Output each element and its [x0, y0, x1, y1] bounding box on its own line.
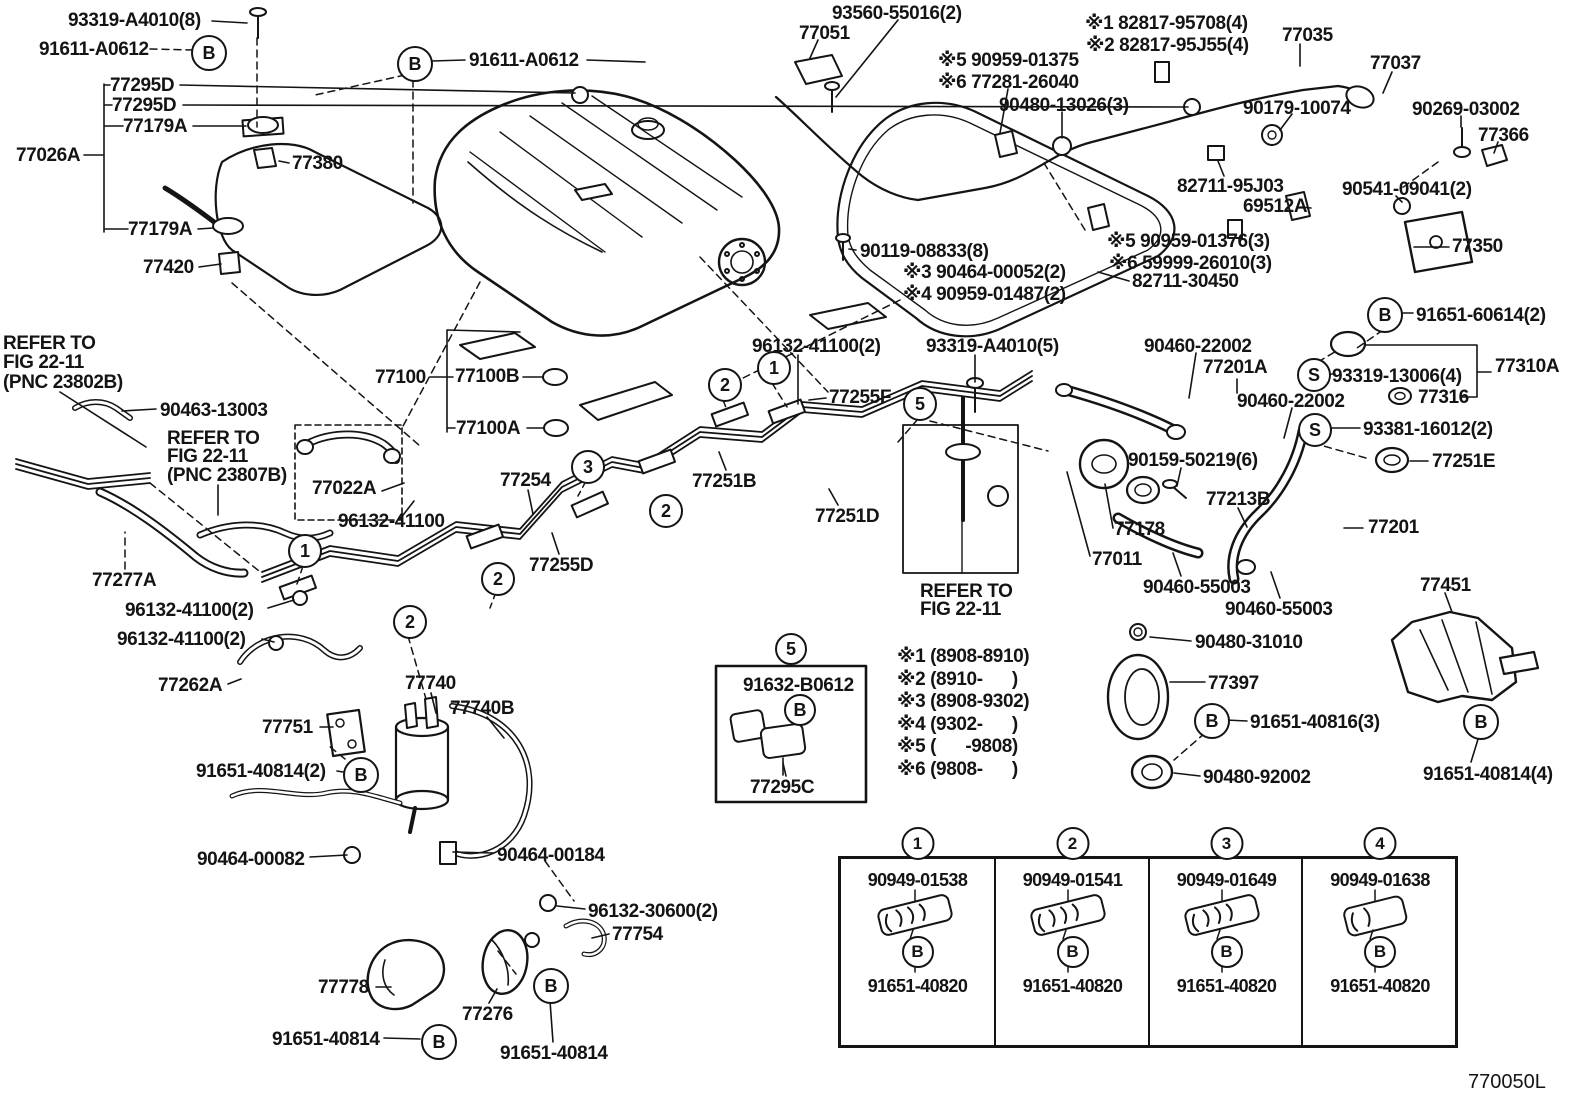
part-93560-55016: 93560-55016(2) [832, 4, 962, 23]
part-77276: 77276 [462, 1005, 513, 1024]
note3-90464-00052: ※3 90464-00052(2) [903, 263, 1066, 282]
drawing-number: 770050L [1468, 1072, 1546, 1092]
callout-2-14: 2 [481, 562, 515, 596]
callout-b-7: B [1194, 703, 1230, 739]
callout-3-table: 3 [1210, 827, 1243, 860]
part-93319-13006: 93319-13006(4) [1332, 367, 1462, 386]
part-77179a-1: 77179A [123, 117, 187, 136]
part-90460-22002-1: 90460-22002 [1144, 337, 1252, 356]
part-96132-30600: 96132-30600(2) [588, 902, 718, 921]
callout-b-4: B [784, 694, 816, 726]
part-93319-a4010-8: 93319-A4010(8) [68, 11, 201, 30]
part-77251b: 77251B [692, 472, 756, 491]
part-91651-40814-2: 91651-40814(2) [196, 762, 326, 781]
part-77310a: 77310A [1495, 357, 1559, 376]
part-77178: 77178 [1114, 520, 1165, 539]
table-part-number: 90949-01538 [841, 870, 994, 891]
part-77213b: 77213B [1206, 490, 1270, 509]
part-77420: 77420 [143, 258, 194, 277]
part-77255d: 77255D [529, 556, 593, 575]
callout-b-table: B [1211, 936, 1243, 968]
part-77754: 77754 [612, 925, 663, 944]
part-90541-09041: 90541-09041(2) [1342, 180, 1472, 199]
callout-2-15: 2 [649, 494, 683, 528]
part-77179a-2: 77179A [128, 220, 192, 239]
part-82711-30450: 82711-30450 [1132, 272, 1239, 291]
part-90464-00184: 90464-00184 [497, 846, 605, 865]
part-90480-31010: 90480-31010 [1195, 633, 1303, 652]
callout-b-8: B [1463, 704, 1499, 740]
part-90159-50219: 90159-50219(6) [1128, 451, 1258, 470]
part-91611-a0612-right: 91611-A0612 [469, 51, 579, 70]
callout-b-table: B [902, 936, 934, 968]
table-part-number: 91651-40820 [1303, 976, 1457, 997]
part-77051: 77051 [799, 24, 850, 43]
callout-2-table: 2 [1056, 827, 1089, 860]
part-91651-40816: 91651-40816(3) [1250, 713, 1380, 732]
callout-4-table: 4 [1364, 827, 1397, 860]
callout-2-13: 2 [393, 605, 427, 639]
part-90179-10074: 90179-10074 [1243, 99, 1351, 118]
part-91651-40814-4: 91651-40814(4) [1423, 765, 1553, 784]
refer1-line2: FIG 22-11 [3, 353, 84, 372]
part-77037: 77037 [1370, 54, 1421, 73]
part-96132-41100-b2: 96132-41100(2) [117, 630, 246, 649]
part-96132-41100-mid: 96132-41100 [338, 512, 445, 531]
part-93319-a4010-5: 93319-A4010(5) [926, 337, 1059, 356]
part-77740: 77740 [405, 674, 456, 693]
callout-b-table: B [1364, 936, 1396, 968]
part-77251e: 77251E [1432, 452, 1495, 471]
part-77100: 77100 [375, 368, 426, 387]
clamp-usage-table: 1 90949-01538 B 91651-40820 2 90949-0154… [838, 856, 1458, 1048]
part-90480-92002: 90480-92002 [1203, 768, 1311, 787]
spec-note-4: ※4 (9302- ) [897, 715, 1018, 734]
callout-b-6: B [421, 1024, 457, 1060]
part-91632-b0612: 91632-B0612 [743, 676, 854, 695]
table-column-3: 3 90949-01649 B 91651-40820 [1148, 859, 1303, 1045]
part-93381-16012: 93381-16012(2) [1363, 420, 1493, 439]
callout-b-table: B [1057, 936, 1089, 968]
refer1-line3: (PNC 23802B) [3, 373, 123, 392]
table-column-2: 2 90949-01541 B 91651-40820 [994, 859, 1149, 1045]
part-77295d-1: 77295D [110, 76, 174, 95]
part-77011: 77011 [1092, 550, 1142, 569]
part-77316: 77316 [1418, 388, 1469, 407]
spec-note-5: ※5 ( -9808) [897, 737, 1018, 756]
note1-82817-95708: ※1 82817-95708(4) [1085, 14, 1248, 33]
part-77251d: 77251D [815, 507, 879, 526]
part-77295c: 77295C [750, 778, 814, 797]
part-77255f: 77255F [829, 388, 891, 407]
callout-1-12: 1 [757, 351, 791, 385]
spec-note-3: ※3 (8908-9302) [897, 692, 1029, 711]
part-77397: 77397 [1208, 674, 1259, 693]
part-77201a: 77201A [1203, 358, 1267, 377]
spec-note-1: ※1 (8908-8910) [897, 647, 1029, 666]
part-77022a: 77022A [312, 479, 376, 498]
part-77254: 77254 [500, 471, 551, 490]
callout-s-9: S [1297, 358, 1331, 392]
part-90464-00082: 90464-00082 [197, 850, 305, 869]
part-77740b: 77740B [450, 699, 514, 718]
note5-90959-01376: ※5 90959-01376(3) [1107, 232, 1270, 251]
refer1-line1: REFER TO [3, 334, 96, 353]
part-77366: 77366 [1478, 126, 1529, 145]
part-77451: 77451 [1420, 576, 1471, 595]
part-77778: 77778 [318, 978, 369, 997]
part-90480-13026: 90480-13026(3) [999, 96, 1129, 115]
part-77035: 77035 [1282, 26, 1333, 45]
part-77295d-2: 77295D [112, 96, 176, 115]
part-77100b: 77100B [455, 367, 519, 386]
table-column-1: 1 90949-01538 B 91651-40820 [841, 859, 994, 1045]
part-90269-03002: 90269-03002 [1412, 100, 1520, 119]
part-69512a: 69512A [1243, 197, 1307, 216]
part-91651-40814-left: 91651-40814 [272, 1030, 380, 1049]
part-77026a: 77026A [16, 146, 80, 165]
part-77100a: 77100A [456, 419, 520, 438]
table-part-number: 91651-40820 [841, 976, 994, 997]
callout-1-11: 1 [288, 534, 322, 568]
callout-b-1: B [397, 46, 433, 82]
callout-s-10: S [1298, 413, 1332, 447]
callout-1-table: 1 [901, 827, 934, 860]
callout-3-17: 3 [571, 450, 605, 484]
part-90460-55003-2: 90460-55003 [1225, 600, 1333, 619]
table-part-number: 91651-40820 [1150, 976, 1303, 997]
table-part-number: 90949-01541 [996, 870, 1149, 891]
part-91611-a0612-left: 91611-A0612 [39, 40, 149, 59]
parts-diagram-canvas: 1 90949-01538 B 91651-40820 2 90949-0154… [0, 0, 1592, 1099]
part-77350: 77350 [1452, 237, 1503, 256]
part-77201: 77201 [1368, 518, 1419, 537]
note2-82817-95j55: ※2 82817-95J55(4) [1086, 36, 1249, 55]
table-column-4: 4 90949-01638 B 91651-40820 [1301, 859, 1457, 1045]
table-part-number: 91651-40820 [996, 976, 1149, 997]
note4-90959-01487: ※4 90959-01487(2) [903, 285, 1066, 304]
part-77262a: 77262A [158, 676, 222, 695]
table-part-number: 90949-01638 [1303, 870, 1457, 891]
callout-b-0: B [191, 35, 227, 71]
callout-b-5: B [533, 968, 569, 1004]
callout-2-16: 2 [708, 368, 742, 402]
callout-b-3: B [343, 757, 379, 793]
note5-90959-01375: ※5 90959-01375 [938, 51, 1079, 70]
callout-b-2: B [1367, 297, 1403, 333]
part-77277a: 77277A [92, 571, 156, 590]
part-91651-60614: 91651-60614(2) [1416, 306, 1546, 325]
part-90460-55003-1: 90460-55003 [1143, 578, 1251, 597]
refer2-line2: FIG 22-11 [167, 447, 248, 466]
refer3-line2: FIG 22-11 [920, 600, 1001, 619]
part-91651-40814-right: 91651-40814 [500, 1044, 608, 1063]
note6-77281-26040: ※6 77281-26040 [938, 73, 1079, 92]
part-90460-22002-2: 90460-22002 [1237, 392, 1345, 411]
part-90463-13003: 90463-13003 [160, 401, 268, 420]
part-77751: 77751 [262, 718, 313, 737]
refer2-line3: (PNC 23807B) [167, 466, 287, 485]
table-part-number: 90949-01649 [1150, 870, 1303, 891]
spec-note-2: ※2 (8910- ) [897, 670, 1018, 689]
callout-5-19: 5 [775, 633, 807, 665]
part-77380: 77380 [292, 154, 343, 173]
part-96132-41100-b1: 96132-41100(2) [125, 601, 254, 620]
part-90119-08833: 90119-08833(8) [860, 242, 989, 261]
callout-5-18: 5 [903, 387, 937, 421]
part-82711-95j03: 82711-95J03 [1177, 177, 1284, 196]
spec-note-6: ※6 (9808- ) [897, 760, 1018, 779]
